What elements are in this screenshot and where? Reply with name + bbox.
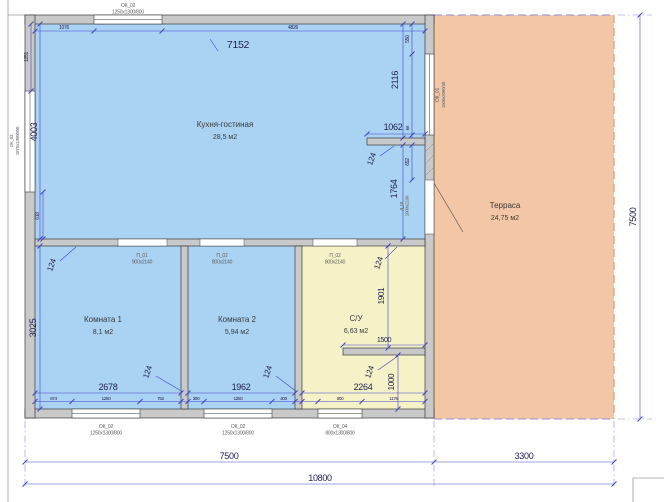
dim: 550 [405,35,411,43]
floor-plan-canvas: ОК_02 1250x1300/800 ОК_03 1875x1300/800 … [0,0,664,502]
room-name: Комната 1 [84,315,123,324]
dim: 4826 [288,25,298,31]
terrace-area [434,15,614,419]
dim: 1251 [24,52,30,62]
room-area: 5,94 м2 [225,329,249,336]
dim: 1764 [389,179,399,198]
dim-house-width: 7500 [220,451,239,461]
door-label: П_02 [216,253,228,259]
dim: 1076 [59,25,69,31]
door-label: П_02 [329,253,341,259]
dim: 2116 [390,71,400,89]
room-name: Терраса [490,201,521,210]
floor-plan-sheet: ОК_02 1250x1300/800 ОК_03 1875x1300/800 … [0,0,664,502]
dim-total-width: 10800 [308,473,332,483]
dim: 618 [35,212,41,220]
dim: 652 [405,158,411,166]
room-name: Кухня-гостиная [197,120,254,129]
dim: 1062 [384,122,403,132]
dim-total-height: 7500 [628,207,638,226]
dim: 800 [337,396,344,401]
dim: 1250 [234,396,244,401]
window-size: 1500x2060/40 [441,81,446,108]
dim: 1250 [102,396,112,401]
dim: 1901 [377,287,386,304]
room-name: Комната 2 [218,315,257,324]
dim: 1176 [389,396,398,401]
room-area: 8,1 м2 [93,329,113,336]
dim: 7152 [227,39,250,51]
dim: 752 [157,396,164,401]
dim: 2264 [354,382,373,392]
door-p02-opening-1 [200,239,244,246]
dim: 674 [50,396,57,401]
window-size: 1250x1300/800 [112,10,144,16]
window-size: 800x1300/800 [325,431,355,437]
dim: 400 [280,396,287,401]
window-label: ОК_03 [9,134,14,147]
dim: 3025 [28,318,38,337]
room-name: С/У [349,314,363,323]
dim: 1962 [232,382,251,392]
door-p02-opening-2 [313,239,357,246]
door-size: 800x2140 [325,260,346,266]
door-label: Д_01 [399,200,404,210]
window-label: ОК_04 [333,424,348,430]
room-area: 28,5 м2 [213,134,237,141]
dim-terrace-width: 3300 [515,451,534,461]
door-size: 900x2140 [132,260,153,266]
door-label: П_01 [136,253,148,259]
room-area: 24,75 м2 [491,215,519,222]
window-label: ОК_02 [121,3,136,9]
window-size: 1875x1300/800 [15,126,20,155]
kitchen-living-room-area [35,24,425,239]
dim: 2678 [99,382,118,392]
dim: 300 [193,396,200,401]
door-p01-opening [118,239,167,246]
dim: 4003 [29,122,39,141]
dim: 1500 [377,337,392,344]
window-label: ОК_02 [99,424,114,430]
room-area: 6,63 м2 [344,328,368,335]
dim: 1000 [387,373,396,390]
door-size: 1000x2100 [405,195,410,216]
window-size: 1250x1300/800 [222,431,254,437]
window-size: 1250x1300/800 [90,431,122,437]
door-size: 800x2140 [212,260,233,266]
window-label: ОК_02 [231,424,246,430]
door-d01-opening [425,180,434,234]
